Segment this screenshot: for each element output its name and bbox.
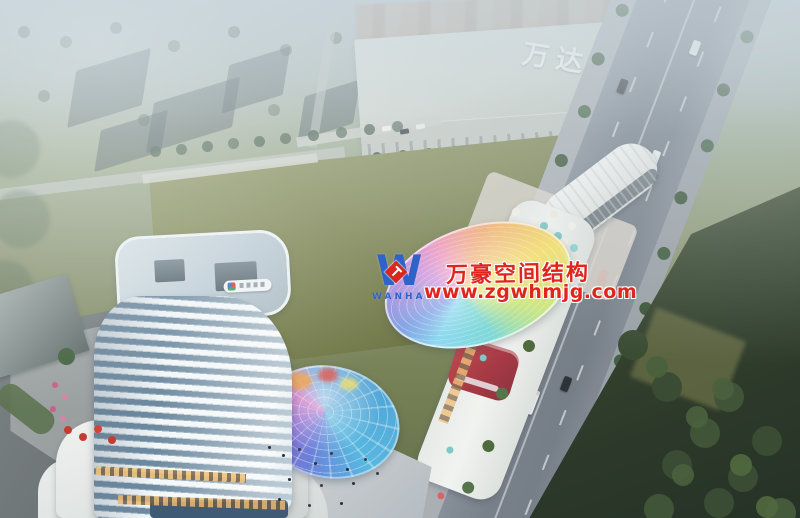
park-tree-canopy <box>618 330 648 360</box>
tower-sign-glyphs <box>239 282 266 288</box>
pedestrian-dots <box>268 446 271 449</box>
field-edge-tree-row <box>150 146 161 157</box>
aerial-render-scene: 万达广场 <box>0 0 800 518</box>
park-tree-canopy <box>646 356 668 378</box>
dome-color-patch <box>340 378 358 390</box>
terrace-umbrellas-white <box>512 208 520 216</box>
red-umbrellas <box>64 426 72 434</box>
flower-planters <box>52 382 58 388</box>
far-building-block <box>94 110 168 172</box>
tower-logo-sign <box>223 278 272 292</box>
tower-logo-icon <box>227 282 235 290</box>
far-building-block <box>222 46 291 113</box>
car <box>689 40 702 57</box>
tower-balcony-bands <box>94 296 292 518</box>
hazy-tree-cluster <box>0 120 40 178</box>
dome-color-patch <box>318 368 338 382</box>
far-building-block <box>67 48 151 128</box>
watermark-website-text: www.zgwhmjg.com <box>424 281 637 303</box>
street-tree-row <box>58 348 75 365</box>
far-tree-cluster <box>18 26 30 38</box>
rooftop-ac-unit <box>154 259 185 283</box>
car <box>616 78 629 95</box>
tower-shading <box>94 296 292 518</box>
car <box>560 376 573 393</box>
